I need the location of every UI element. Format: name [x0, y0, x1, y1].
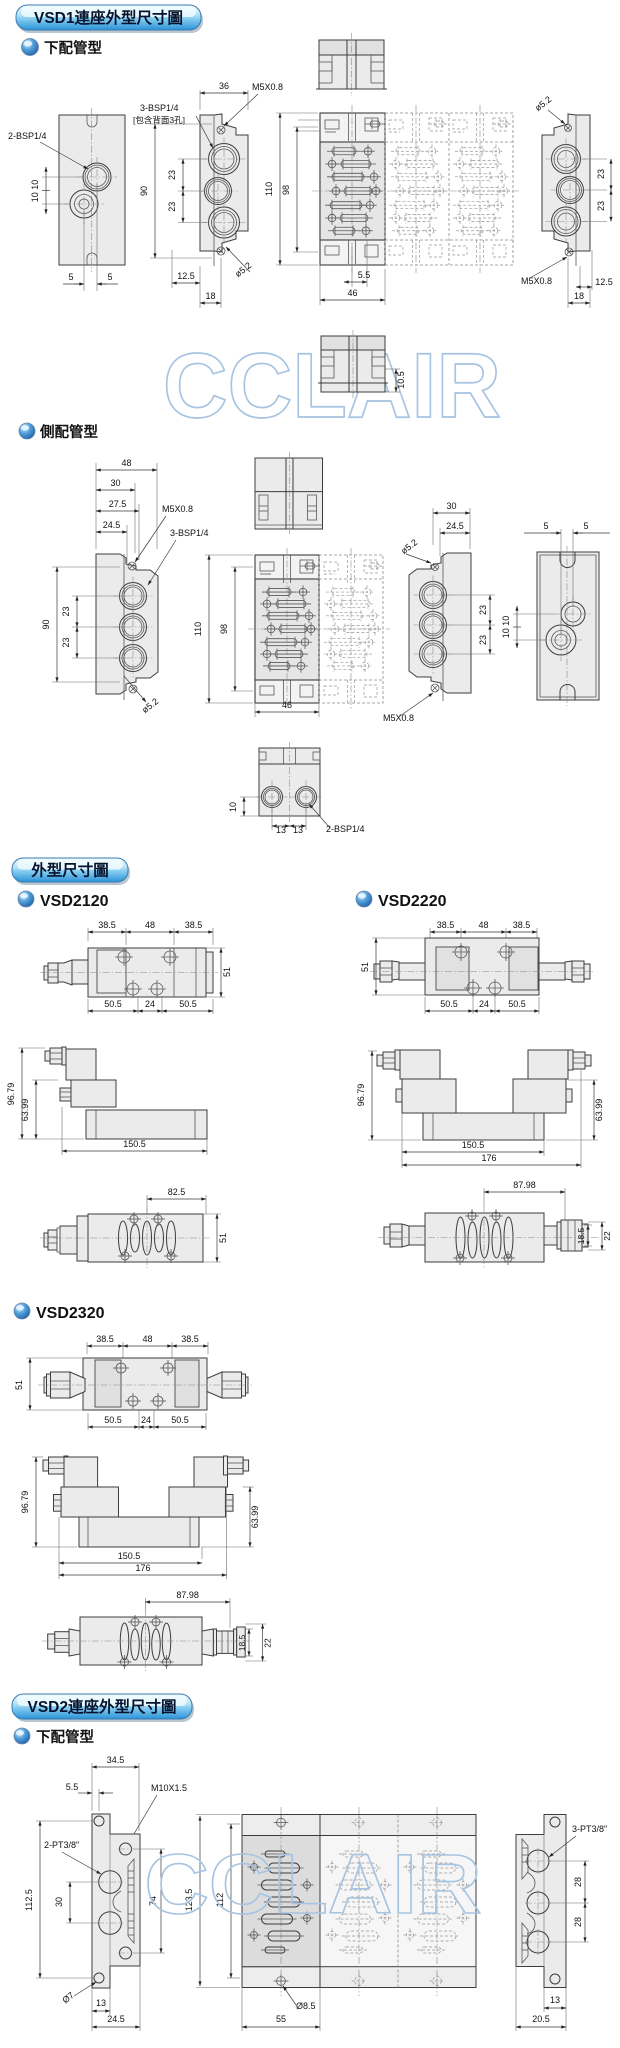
- svg-text:5.5: 5.5: [66, 1782, 79, 1792]
- svg-text:63.99: 63.99: [594, 1099, 604, 1122]
- svg-text:側配管型: 側配管型: [39, 423, 98, 441]
- svg-text:38.5: 38.5: [185, 920, 203, 930]
- svg-text:96.79: 96.79: [356, 1084, 366, 1107]
- svg-text:20.5: 20.5: [532, 2014, 550, 2024]
- svg-text:38.5: 38.5: [513, 920, 531, 930]
- svg-text:下配管型: 下配管型: [44, 39, 102, 57]
- svg-text:51: 51: [360, 962, 370, 972]
- svg-text:12.5: 12.5: [595, 277, 613, 287]
- svg-text:外型尺寸圖: 外型尺寸圖: [31, 861, 109, 880]
- svg-text:Ø8.5: Ø8.5: [296, 2001, 316, 2011]
- svg-text:48: 48: [478, 920, 488, 930]
- svg-text:23: 23: [596, 169, 606, 179]
- svg-text:13: 13: [550, 1995, 560, 2005]
- svg-text:23: 23: [478, 605, 488, 615]
- svg-text:10.5: 10.5: [396, 371, 406, 389]
- svg-text:2-BSP1/4: 2-BSP1/4: [8, 131, 47, 141]
- svg-text:24.5: 24.5: [446, 521, 464, 531]
- svg-text:63.99: 63.99: [20, 1099, 30, 1122]
- svg-text:87.98: 87.98: [513, 1180, 536, 1190]
- svg-text:98: 98: [219, 624, 229, 634]
- svg-text:23: 23: [167, 170, 177, 180]
- svg-text:28: 28: [573, 1877, 583, 1887]
- svg-text:48: 48: [145, 920, 155, 930]
- svg-text:98: 98: [281, 185, 291, 195]
- svg-text:[包含背面3孔]: [包含背面3孔]: [133, 115, 185, 125]
- svg-text:30: 30: [446, 501, 456, 511]
- svg-text:23: 23: [61, 637, 71, 647]
- svg-text:VSD2連座外型尺寸圖: VSD2連座外型尺寸圖: [28, 1697, 177, 1716]
- svg-text:M5X0.8: M5X0.8: [252, 82, 283, 92]
- svg-text:2-BSP1/4: 2-BSP1/4: [326, 824, 365, 834]
- svg-text:18: 18: [205, 291, 215, 301]
- svg-text:38.5: 38.5: [98, 920, 116, 930]
- svg-text:VSD1連座外型尺寸圖: VSD1連座外型尺寸圖: [34, 8, 183, 27]
- svg-text:VSD2220: VSD2220: [378, 893, 447, 910]
- svg-text:下配管型: 下配管型: [36, 1728, 94, 1746]
- svg-text:23: 23: [478, 635, 488, 645]
- svg-text:30: 30: [54, 1897, 64, 1907]
- svg-text:5: 5: [543, 521, 548, 531]
- svg-text:CCLAIR: CCLAIR: [145, 1837, 482, 1931]
- svg-text:18.5: 18.5: [237, 1634, 247, 1651]
- svg-text:50.5: 50.5: [508, 999, 526, 1009]
- svg-text:13: 13: [96, 1998, 106, 2008]
- svg-text:176: 176: [135, 1563, 150, 1573]
- svg-text:5: 5: [583, 521, 588, 531]
- svg-text:46: 46: [347, 288, 357, 298]
- svg-text:150.5: 150.5: [462, 1140, 485, 1150]
- svg-text:M10X1.5: M10X1.5: [151, 1783, 187, 1793]
- svg-text:M5X0.8: M5X0.8: [162, 504, 193, 514]
- svg-text:27.5: 27.5: [109, 499, 127, 509]
- svg-text:5: 5: [107, 272, 112, 282]
- svg-text:87.98: 87.98: [176, 1590, 199, 1600]
- svg-text:110: 110: [264, 182, 274, 196]
- svg-text:12.5: 12.5: [177, 271, 195, 281]
- svg-text:63.99: 63.99: [250, 1506, 260, 1529]
- svg-text:24: 24: [145, 999, 155, 1009]
- svg-text:30: 30: [110, 478, 120, 488]
- svg-text:51: 51: [14, 1380, 24, 1390]
- svg-text:150.5: 150.5: [123, 1139, 146, 1149]
- svg-text:50.5: 50.5: [440, 999, 458, 1009]
- svg-text:24: 24: [479, 999, 489, 1009]
- svg-text:96.79: 96.79: [6, 1083, 16, 1106]
- svg-text:22: 22: [263, 1638, 273, 1648]
- svg-text:51: 51: [218, 1233, 228, 1243]
- svg-text:36: 36: [219, 81, 229, 91]
- svg-text:34.5: 34.5: [107, 1755, 125, 1765]
- svg-text:5: 5: [68, 272, 73, 282]
- svg-text:VSD2320: VSD2320: [36, 1305, 105, 1322]
- svg-text:38.5: 38.5: [181, 1334, 199, 1344]
- svg-text:23: 23: [167, 202, 177, 212]
- svg-text:22: 22: [602, 1231, 612, 1241]
- svg-text:2-PT3/8": 2-PT3/8": [44, 1840, 79, 1850]
- svg-text:3-PT3/8": 3-PT3/8": [572, 1824, 607, 1834]
- svg-text:112.5: 112.5: [24, 1889, 34, 1911]
- svg-text:110: 110: [193, 622, 203, 636]
- svg-text:24.5: 24.5: [107, 2014, 125, 2024]
- svg-text:150.5: 150.5: [118, 1551, 141, 1561]
- svg-text:24.5: 24.5: [103, 520, 121, 530]
- svg-text:51: 51: [222, 967, 232, 977]
- svg-text:38.5: 38.5: [96, 1334, 114, 1344]
- svg-text:10 10: 10 10: [30, 180, 40, 203]
- svg-text:48: 48: [142, 1334, 152, 1344]
- svg-text:90: 90: [41, 619, 51, 629]
- svg-text:10 10: 10 10: [501, 616, 511, 639]
- svg-text:38.5: 38.5: [437, 920, 455, 930]
- svg-text:18: 18: [574, 291, 584, 301]
- svg-text:M5X0.8: M5X0.8: [521, 276, 552, 286]
- svg-text:46: 46: [282, 700, 292, 710]
- svg-text:24: 24: [141, 1415, 151, 1425]
- svg-text:90: 90: [139, 186, 149, 196]
- svg-text:82.5: 82.5: [168, 1187, 186, 1197]
- svg-text:23: 23: [61, 606, 71, 616]
- svg-text:96.79: 96.79: [20, 1491, 30, 1514]
- svg-text:50.5: 50.5: [104, 1415, 122, 1425]
- svg-text:3-BSP1/4: 3-BSP1/4: [170, 528, 209, 538]
- svg-text:5.5: 5.5: [358, 270, 371, 280]
- svg-text:176: 176: [481, 1153, 496, 1163]
- svg-text:50.5: 50.5: [179, 999, 197, 1009]
- svg-text:VSD2120: VSD2120: [40, 893, 109, 910]
- svg-text:M5X0.8: M5X0.8: [383, 713, 414, 723]
- svg-text:50.5: 50.5: [104, 999, 122, 1009]
- svg-text:23: 23: [596, 201, 606, 211]
- svg-text:50.5: 50.5: [171, 1415, 189, 1425]
- svg-text:18.5: 18.5: [576, 1227, 586, 1244]
- svg-text:13: 13: [276, 825, 286, 835]
- svg-text:10: 10: [228, 802, 238, 812]
- svg-text:55: 55: [276, 2014, 286, 2024]
- svg-text:48: 48: [121, 458, 131, 468]
- svg-text:28: 28: [573, 1917, 583, 1927]
- svg-text:3-BSP1/4: 3-BSP1/4: [140, 103, 179, 113]
- svg-text:13: 13: [293, 825, 303, 835]
